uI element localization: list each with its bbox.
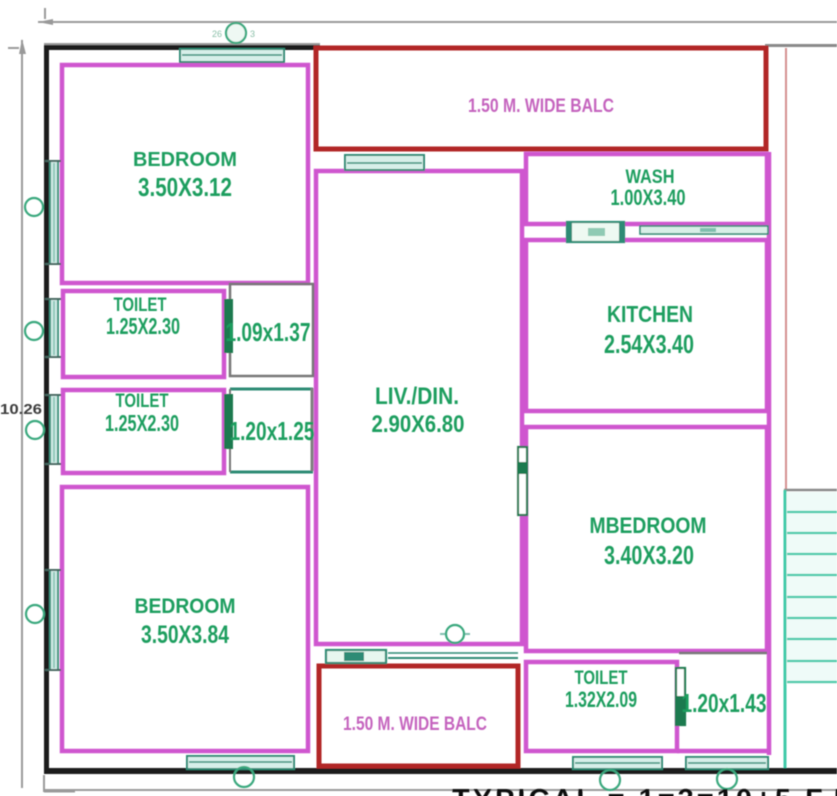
svg-text:1.20x1.25: 1.20x1.25 [230, 416, 315, 446]
svg-text:MBEDROOM: MBEDROOM [590, 513, 707, 538]
svg-text:TYPICAL = 1=3=10+5 F.F: TYPICAL = 1=3=10+5 F.F [452, 784, 837, 796]
svg-text:KITCHEN: KITCHEN [607, 301, 693, 327]
svg-text:10.26: 10.26 [0, 401, 42, 418]
svg-text:TOILET: TOILET [575, 668, 628, 689]
svg-text:2.54X3.40: 2.54X3.40 [604, 329, 694, 359]
svg-text:1.00X3.40: 1.00X3.40 [611, 185, 686, 210]
svg-text:26: 26 [212, 29, 222, 39]
svg-text:2.90X6.80: 2.90X6.80 [372, 411, 465, 438]
svg-text:1.25X2.30: 1.25X2.30 [106, 313, 180, 339]
svg-text:3.40X3.20: 3.40X3.20 [604, 540, 694, 570]
svg-text:3.50X3.84: 3.50X3.84 [141, 621, 229, 649]
svg-text:BEDROOM: BEDROOM [133, 149, 237, 171]
svg-text:TOILET: TOILET [116, 391, 169, 412]
svg-text:3.50X3.12: 3.50X3.12 [138, 172, 232, 202]
svg-text:LIV./DIN.: LIV./DIN. [375, 383, 459, 410]
svg-text:1.50 M. WIDE BALC: 1.50 M. WIDE BALC [468, 96, 614, 117]
svg-text:3: 3 [250, 29, 255, 39]
svg-text:BEDROOM: BEDROOM [135, 595, 236, 618]
svg-text:1.50 M. WIDE BALC: 1.50 M. WIDE BALC [343, 714, 487, 735]
svg-text:1.20x1.43: 1.20x1.43 [682, 688, 767, 718]
svg-text:1.32X2.09: 1.32X2.09 [565, 687, 637, 712]
svg-text:1.09x1.37: 1.09x1.37 [226, 317, 311, 347]
svg-text:1.25X2.30: 1.25X2.30 [105, 410, 179, 436]
